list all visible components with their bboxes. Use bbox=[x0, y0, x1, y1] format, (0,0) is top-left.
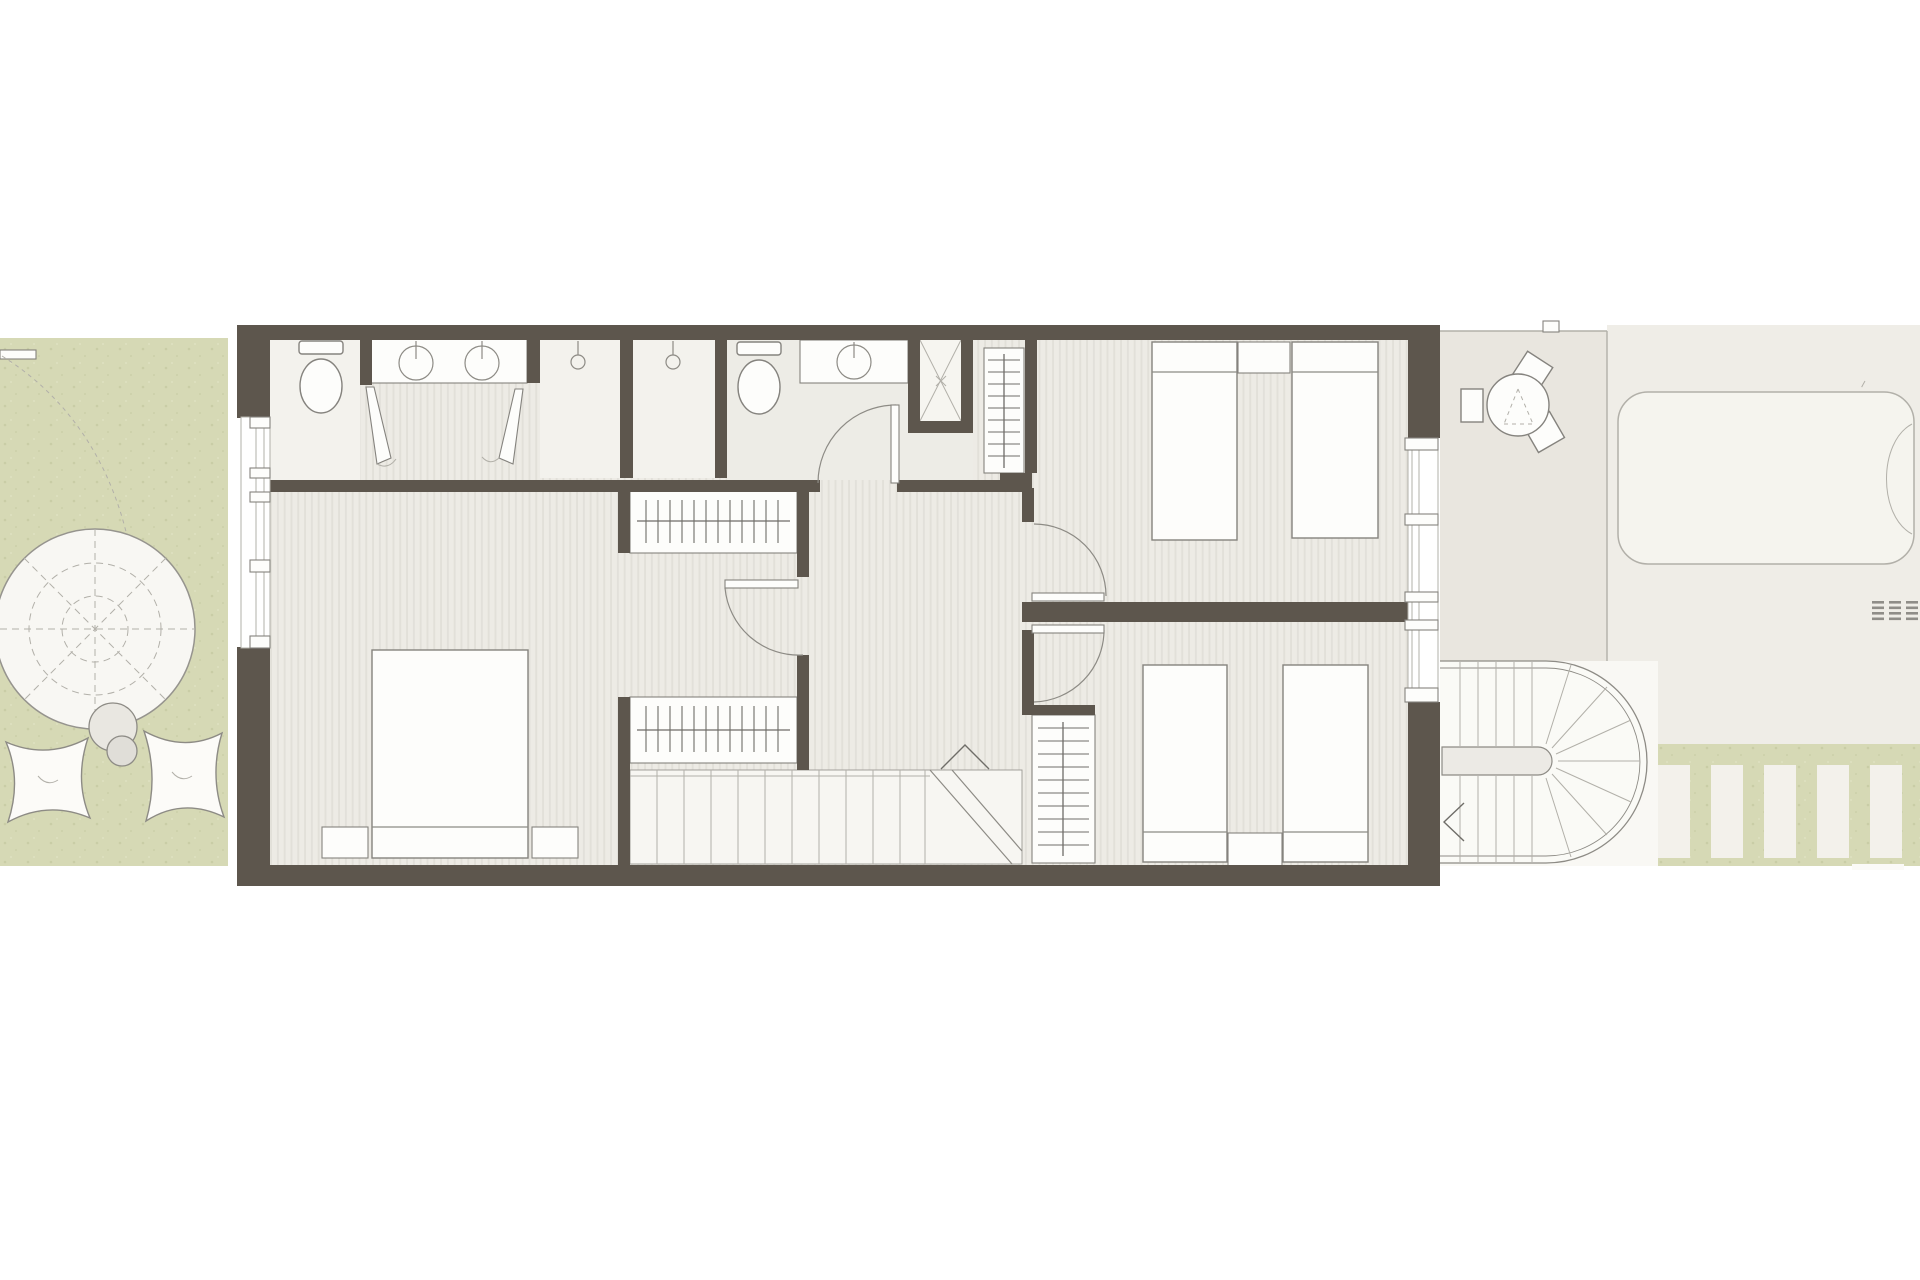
wall-stub bbox=[527, 340, 540, 383]
pouf-right bbox=[144, 731, 224, 821]
wardrobe-dressing-south bbox=[630, 697, 797, 763]
garden-right bbox=[1652, 744, 1920, 870]
curb-line bbox=[1852, 864, 1904, 870]
wall-stub bbox=[1022, 630, 1034, 705]
shower-1-floor bbox=[540, 340, 620, 478]
toilet-icon bbox=[299, 341, 343, 413]
stepping-stone bbox=[1658, 765, 1690, 858]
vanity bbox=[800, 340, 908, 383]
wardrobe-bedroom-3 bbox=[1032, 715, 1095, 863]
wall-stub bbox=[797, 488, 809, 577]
wall-shaft bbox=[961, 340, 973, 433]
spiral-stair-newel-island bbox=[1442, 747, 1552, 775]
pool bbox=[1618, 392, 1914, 564]
wall-exterior-left bbox=[237, 647, 270, 886]
stepping-stone bbox=[1817, 765, 1849, 858]
wardrobe-hall bbox=[984, 348, 1024, 473]
double-vanity bbox=[362, 335, 527, 383]
wall-stub bbox=[618, 488, 630, 553]
wall-stair-cheek bbox=[618, 697, 630, 866]
nightstand bbox=[1238, 342, 1290, 373]
nightstand bbox=[322, 827, 368, 858]
nightstand bbox=[532, 827, 578, 858]
wall-stub bbox=[620, 340, 633, 478]
parasol bbox=[0, 529, 195, 729]
window-left bbox=[241, 417, 270, 648]
house-interior bbox=[267, 335, 1408, 866]
stepping-stone bbox=[1870, 765, 1902, 858]
spiral-staircase bbox=[1440, 661, 1658, 866]
side-table-small bbox=[107, 736, 137, 766]
wall-stub bbox=[1022, 705, 1095, 715]
wall-interior bbox=[267, 480, 820, 492]
wall-stub bbox=[797, 655, 809, 770]
shower-2-floor bbox=[633, 340, 715, 478]
floor-plan-canvas bbox=[0, 0, 1920, 1280]
window-right bbox=[1405, 438, 1438, 702]
wall-stub bbox=[1022, 488, 1034, 522]
wall-exterior-bottom bbox=[237, 865, 1440, 886]
stepping-stone bbox=[1711, 765, 1743, 858]
wall-shaft bbox=[908, 340, 920, 433]
wall-interior bbox=[1025, 340, 1037, 473]
toilet-icon bbox=[737, 342, 781, 414]
wall-exterior-right bbox=[1408, 325, 1440, 438]
round-table bbox=[1487, 374, 1549, 436]
garden-left bbox=[0, 338, 228, 866]
floor-plan-drawing bbox=[0, 0, 1920, 1280]
stepping-stone bbox=[1764, 765, 1796, 858]
wardrobe-dressing-north bbox=[630, 490, 797, 553]
wall-stub bbox=[715, 340, 727, 478]
bathroom-2-floor-ext bbox=[908, 433, 973, 480]
wall-exterior-top bbox=[237, 325, 1440, 340]
wall-stub bbox=[360, 335, 372, 385]
pouf-left bbox=[6, 738, 90, 822]
nightstand bbox=[1228, 833, 1282, 866]
chair bbox=[1461, 389, 1483, 422]
wall-exterior-left bbox=[237, 325, 270, 418]
terrace-notch bbox=[1543, 321, 1559, 332]
wall-interior bbox=[897, 480, 1032, 492]
wall-exterior-right bbox=[1408, 702, 1440, 886]
wall-stub bbox=[1000, 473, 1032, 481]
wall-bedroom-divider bbox=[1022, 602, 1410, 622]
